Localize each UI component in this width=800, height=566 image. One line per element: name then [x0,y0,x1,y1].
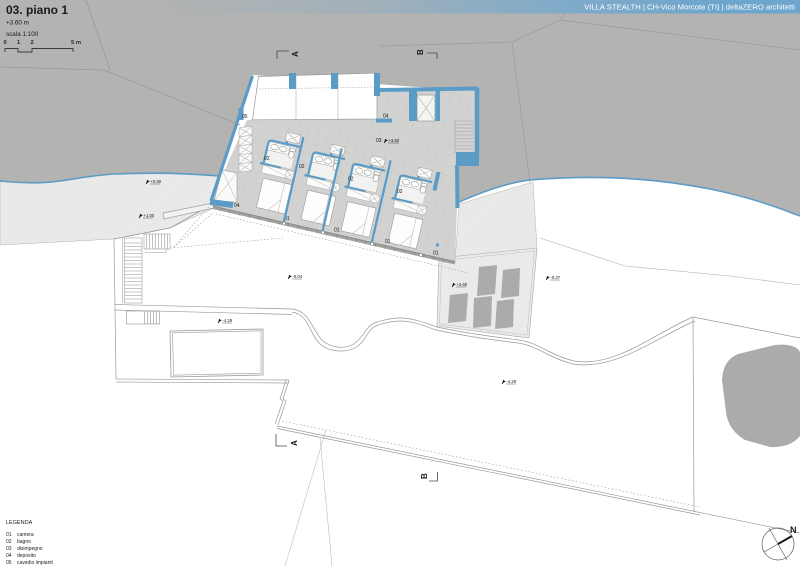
svg-text:cavedio impianti: cavedio impianti [17,560,53,566]
svg-text:0: 0 [4,40,7,46]
svg-text:-4.29: -4.29 [507,379,517,384]
svg-text:LEGENDA: LEGENDA [6,520,33,526]
svg-text:04: 04 [6,553,12,559]
svg-text:N: N [790,525,797,535]
svg-text:B: B [416,49,425,55]
svg-text:05: 05 [242,114,248,120]
svg-text:01: 01 [385,239,391,245]
svg-text:5 m: 5 m [71,40,81,46]
svg-text:03: 03 [6,546,12,552]
svg-text:-4.29: -4.29 [223,318,233,323]
svg-text:02: 02 [264,156,270,162]
svg-text:05: 05 [6,560,12,566]
svg-text:A: A [291,51,300,57]
svg-text:scala 1:100: scala 1:100 [6,31,39,38]
svg-text:A: A [290,440,299,446]
svg-text:-0.04: -0.04 [293,274,303,279]
svg-text:+1.00: +1.00 [144,213,155,218]
svg-text:2: 2 [31,40,34,46]
svg-text:04: 04 [234,203,240,209]
svg-text:+3.60: +3.60 [389,138,400,143]
svg-text:02: 02 [397,189,403,195]
svg-text:bagno: bagno [17,539,31,545]
svg-text:01: 01 [334,228,340,234]
svg-text:03. piano 1: 03. piano 1 [6,3,68,17]
svg-text:03: 03 [376,138,382,144]
svg-text:01: 01 [6,532,12,538]
svg-text:-0.37: -0.37 [551,275,561,280]
svg-text:+0.50: +0.50 [151,179,162,184]
svg-text:disimpegno: disimpegno [17,546,43,552]
svg-text:02: 02 [348,177,354,183]
svg-text:04: 04 [383,114,389,120]
svg-text:deposito: deposito [17,553,36,559]
svg-text:B: B [420,473,429,479]
svg-text:02: 02 [299,164,305,170]
svg-text:VILLA STEALTH | CH-Vico Morcot: VILLA STEALTH | CH-Vico Morcote (TI) | d… [584,2,795,11]
svg-text:02: 02 [6,539,12,545]
svg-text:+2.60: +2.60 [457,282,468,287]
svg-text:camera: camera [17,532,34,538]
svg-text:01: 01 [433,251,439,257]
svg-text:+3.60 m: +3.60 m [6,19,29,26]
